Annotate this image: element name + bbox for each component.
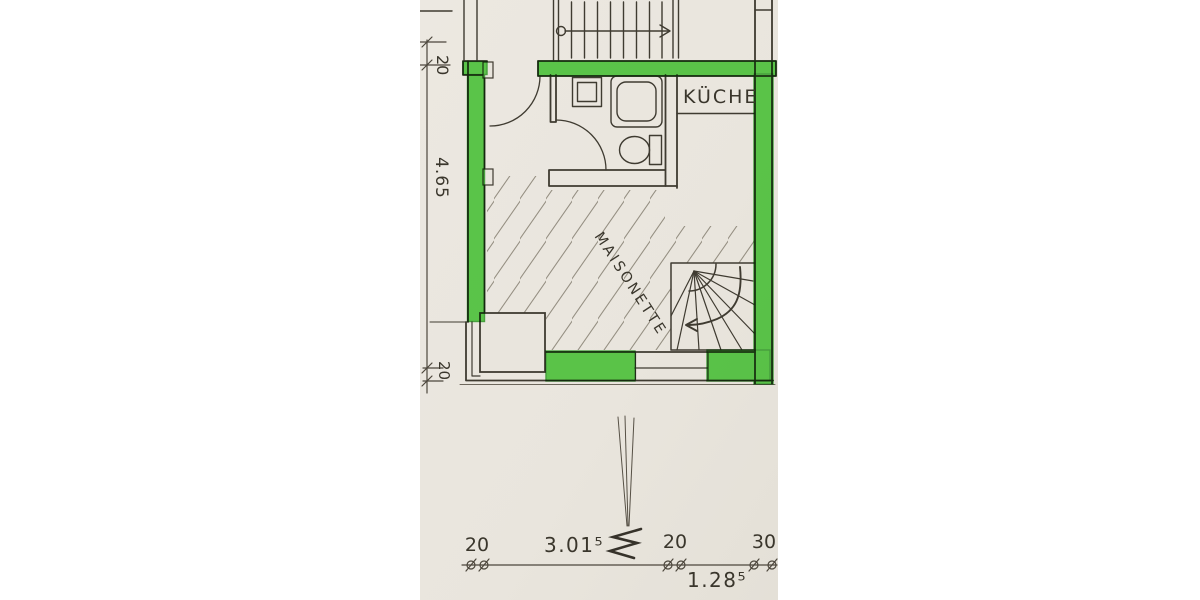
dim-bottom-left-wall: 20 bbox=[465, 534, 489, 556]
dim-mid-wall: 20 bbox=[663, 531, 687, 553]
kitchen-label: KÜCHE bbox=[683, 85, 758, 108]
highlight-bottom-wall-right bbox=[707, 350, 770, 381]
highlight-top-wall-left bbox=[463, 62, 487, 75]
dim-stair-bay-width: 1.28⁵ bbox=[687, 568, 747, 592]
dim-room-width: 3.01⁵ bbox=[544, 533, 604, 557]
dim-left-height: 4.65 bbox=[431, 157, 451, 199]
highlight-bottom-wall-left bbox=[546, 351, 635, 381]
highlight-left-wall bbox=[468, 62, 485, 322]
dim-left-bottom-wall: 20 bbox=[435, 361, 453, 380]
highlight-top-wall bbox=[538, 61, 776, 76]
highlight-right-wall bbox=[754, 74, 773, 384]
floorplan-drawing: KÜCHE MAISONETTE 20 4.65 20 20 3.01⁵ 20 … bbox=[420, 0, 780, 600]
floorplan-photo: KÜCHE MAISONETTE 20 4.65 20 20 3.01⁵ 20 … bbox=[420, 0, 780, 600]
dim-right-wall: 30 bbox=[752, 531, 776, 553]
closet-box bbox=[480, 313, 545, 372]
dim-left-top-wall: 20 bbox=[433, 55, 452, 75]
screenshot-root: { "plan": { "labels": { "kitchen": "KÜCH… bbox=[0, 0, 1200, 600]
